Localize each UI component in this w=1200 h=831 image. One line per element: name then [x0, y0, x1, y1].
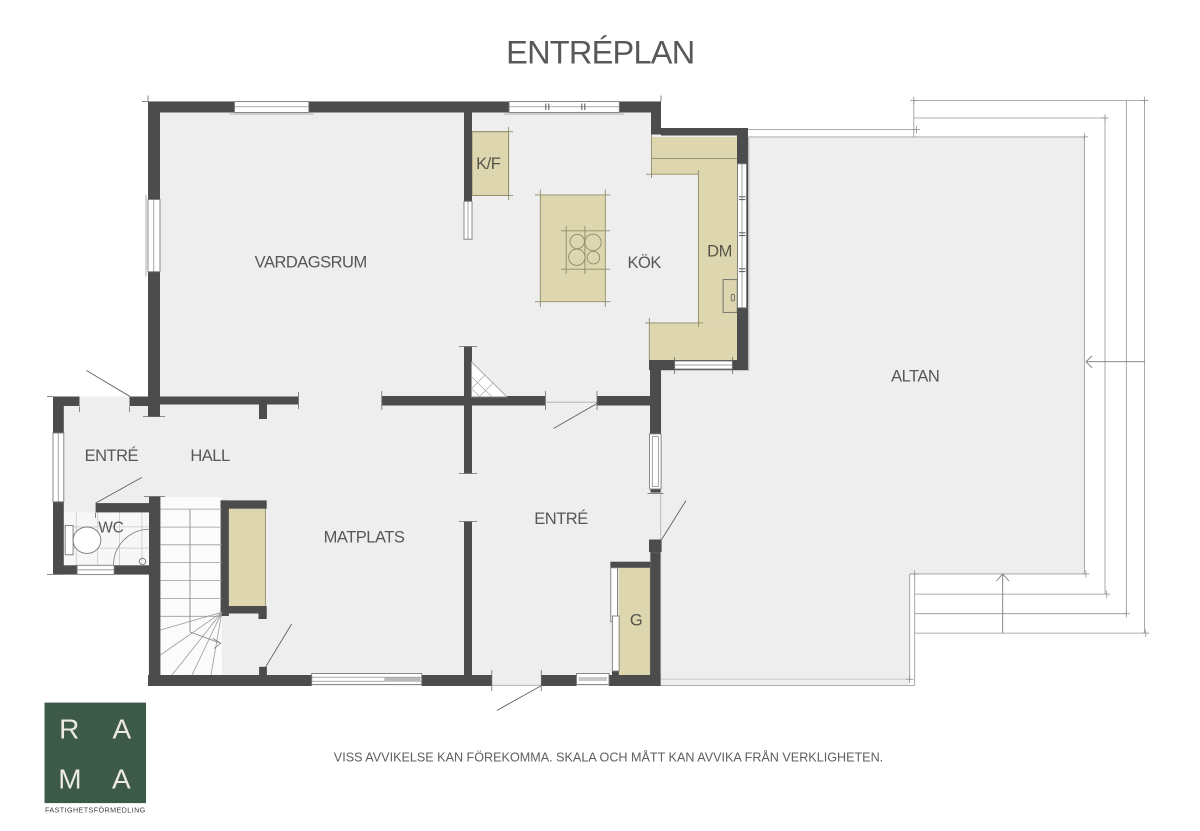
svg-text:ENTRÉPLAN: ENTRÉPLAN — [506, 35, 694, 71]
svg-text:MATPLATS: MATPLATS — [324, 528, 405, 546]
svg-text:DM: DM — [707, 242, 732, 260]
svg-text:KÖK: KÖK — [628, 254, 662, 272]
svg-text:R: R — [59, 713, 79, 744]
svg-text:ENTRÉ: ENTRÉ — [534, 509, 588, 528]
svg-text:K/F: K/F — [476, 155, 501, 173]
svg-text:VARDAGSRUM: VARDAGSRUM — [255, 254, 367, 272]
svg-text:ENTRÉ: ENTRÉ — [85, 446, 139, 465]
svg-text:A: A — [112, 764, 131, 795]
svg-text:VISS AVVIKELSE KAN FÖREKOMMA.: VISS AVVIKELSE KAN FÖREKOMMA. SKALA OCH … — [334, 750, 883, 765]
svg-text:ALTAN: ALTAN — [891, 367, 939, 385]
svg-text:G: G — [630, 612, 642, 630]
svg-text:HALL: HALL — [190, 447, 230, 465]
svg-text:WC: WC — [98, 520, 123, 537]
svg-text:M: M — [58, 764, 81, 795]
svg-text:FASTIGHETSFÖRMEDLING: FASTIGHETSFÖRMEDLING — [45, 806, 146, 815]
svg-text:A: A — [113, 713, 132, 744]
